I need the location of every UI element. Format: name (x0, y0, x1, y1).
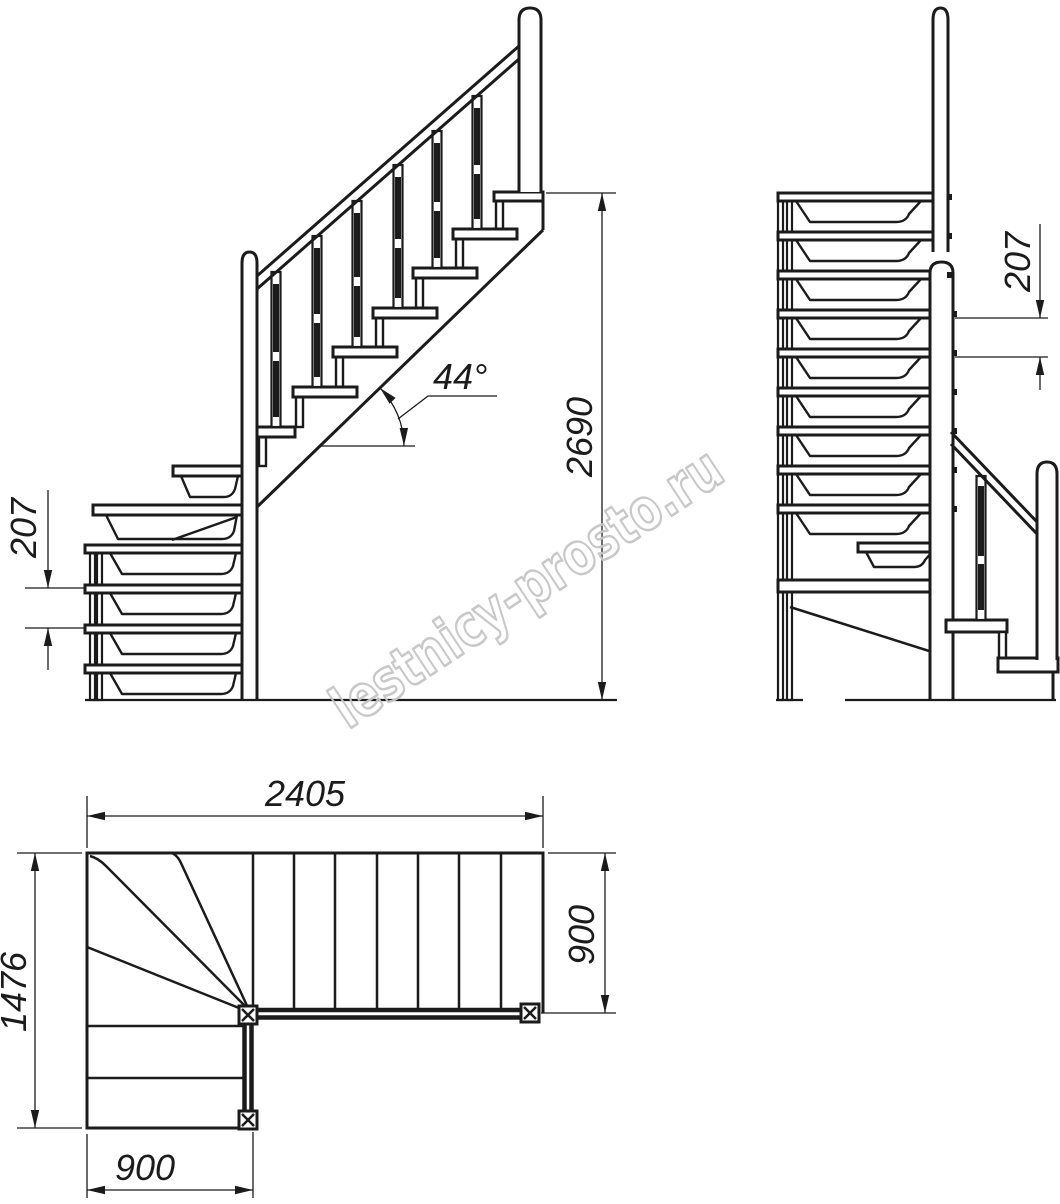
watermark-text: lestnicy-prosto.ru (318, 434, 735, 742)
upper-rail-post (933, 8, 948, 252)
dimension-label-flight-width: 900 (561, 905, 602, 965)
lower-stringer-line (790, 607, 945, 656)
tread (373, 308, 437, 318)
tread (453, 229, 517, 239)
tread (333, 347, 397, 357)
dimension-label-lower-flight-width: 900 (115, 1147, 175, 1188)
tread-stack (778, 193, 953, 592)
dimension-lower-flight-width: 900 (87, 1132, 253, 1198)
dimension-label-riser-right: 207 (997, 230, 1038, 293)
bottom-newel-symbol (239, 1111, 257, 1129)
dimension-label-total-width: 1476 (0, 951, 34, 1032)
bottom-newel-post (1037, 462, 1057, 660)
winder-tread (85, 545, 245, 553)
dimension-total-height: 2690 (546, 193, 616, 700)
winder-stack (85, 466, 245, 700)
dimension-riser-height-left: 207 (3, 490, 84, 670)
side-view: 207 (776, 8, 1058, 700)
straight-flight-treads (294, 853, 501, 1008)
angle-annotation: 44° (320, 356, 497, 446)
corner-newel-symbol (239, 1006, 257, 1024)
dimension-label-riser-left: 207 (3, 496, 44, 559)
plan-outline (87, 853, 543, 1128)
plan-handrail (245, 1010, 522, 1111)
right-newel-symbol (521, 1004, 539, 1022)
winder-tread (93, 505, 242, 515)
staircase-drawing: 2690 207 44° (0, 0, 1060, 1204)
plan-view: 2405 900 1476 900 (0, 773, 616, 1198)
dimension-total-length: 2405 (87, 773, 543, 848)
dimension-label-total-height: 2690 (559, 397, 600, 478)
angle-label: 44° (433, 356, 487, 397)
dimension-total-width: 1476 (0, 853, 82, 1128)
tread (998, 658, 1058, 672)
winder-treads (87, 853, 249, 1026)
drawing-sheet: 2690 207 44° (0, 0, 1060, 1204)
winder-tread (173, 466, 242, 476)
winder-tread (85, 625, 245, 633)
dimension-label-total-length: 2405 (264, 773, 346, 814)
dimension-riser-height-right: 207 (955, 224, 1048, 390)
tread (257, 427, 295, 437)
tread (413, 268, 477, 278)
tread (494, 192, 543, 201)
angle-leader-line (398, 396, 497, 419)
handrail (951, 432, 1038, 535)
center-newel-post (930, 262, 953, 700)
dimension-flight-width: 900 (541, 853, 616, 1013)
winder-tread (85, 665, 245, 673)
top-newel-post (519, 8, 541, 192)
winder-tread (85, 585, 245, 593)
tread (946, 620, 1007, 632)
tread (293, 387, 357, 397)
center-newel-post (242, 252, 257, 700)
